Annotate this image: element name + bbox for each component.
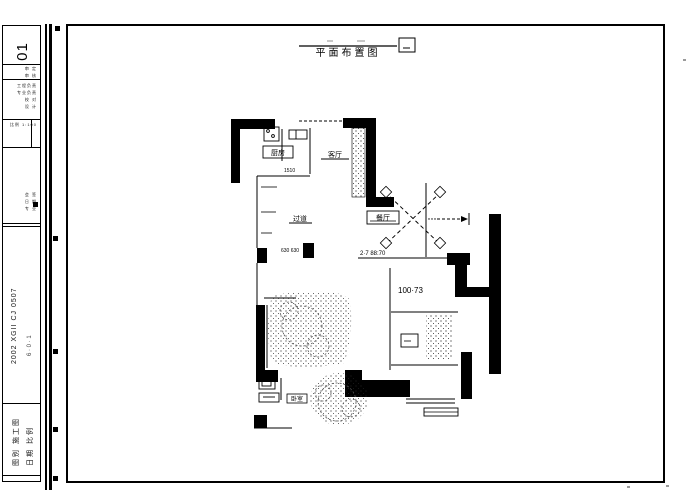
nightstand bbox=[401, 334, 418, 347]
chair bbox=[380, 237, 391, 248]
dim1-text: 1510 bbox=[284, 168, 295, 174]
kitchen-label-text: 厨房 bbox=[271, 148, 285, 157]
living-label-text: 客厅 bbox=[328, 150, 342, 159]
chair bbox=[380, 186, 391, 197]
drawing-title-label: 平面布置图 bbox=[316, 47, 381, 59]
chair bbox=[434, 186, 445, 197]
living-label: 客厅 bbox=[321, 150, 349, 159]
bedroom-label-text: 卧室 bbox=[291, 395, 303, 403]
drawing-title: 平面布置图 bbox=[299, 38, 415, 59]
bedroom-label: 卧室 bbox=[287, 394, 307, 403]
entry-arrow bbox=[428, 213, 469, 225]
dining-table: 餐厅 bbox=[367, 186, 446, 248]
chair bbox=[434, 237, 445, 248]
floor-plan-svg: 平面布置图 bbox=[0, 0, 700, 490]
sheet-background: { "titleblock": { "sheet_number": "01", … bbox=[0, 0, 700, 490]
kitchen-appliances bbox=[264, 127, 307, 141]
wall-hatch bbox=[352, 128, 365, 197]
note1-text: 2·7 88:70 bbox=[360, 251, 386, 257]
scale-box bbox=[399, 38, 415, 52]
exterior-walls bbox=[231, 118, 501, 428]
dim2-text: 630 630 bbox=[281, 248, 299, 254]
hallway-label-text: 过道 bbox=[293, 214, 307, 223]
bedding-texture bbox=[426, 315, 452, 359]
hallway-label: 过道 bbox=[289, 214, 312, 223]
kitchen-label: 厨房 bbox=[263, 146, 293, 158]
note2-text: 100·73 bbox=[398, 286, 423, 295]
